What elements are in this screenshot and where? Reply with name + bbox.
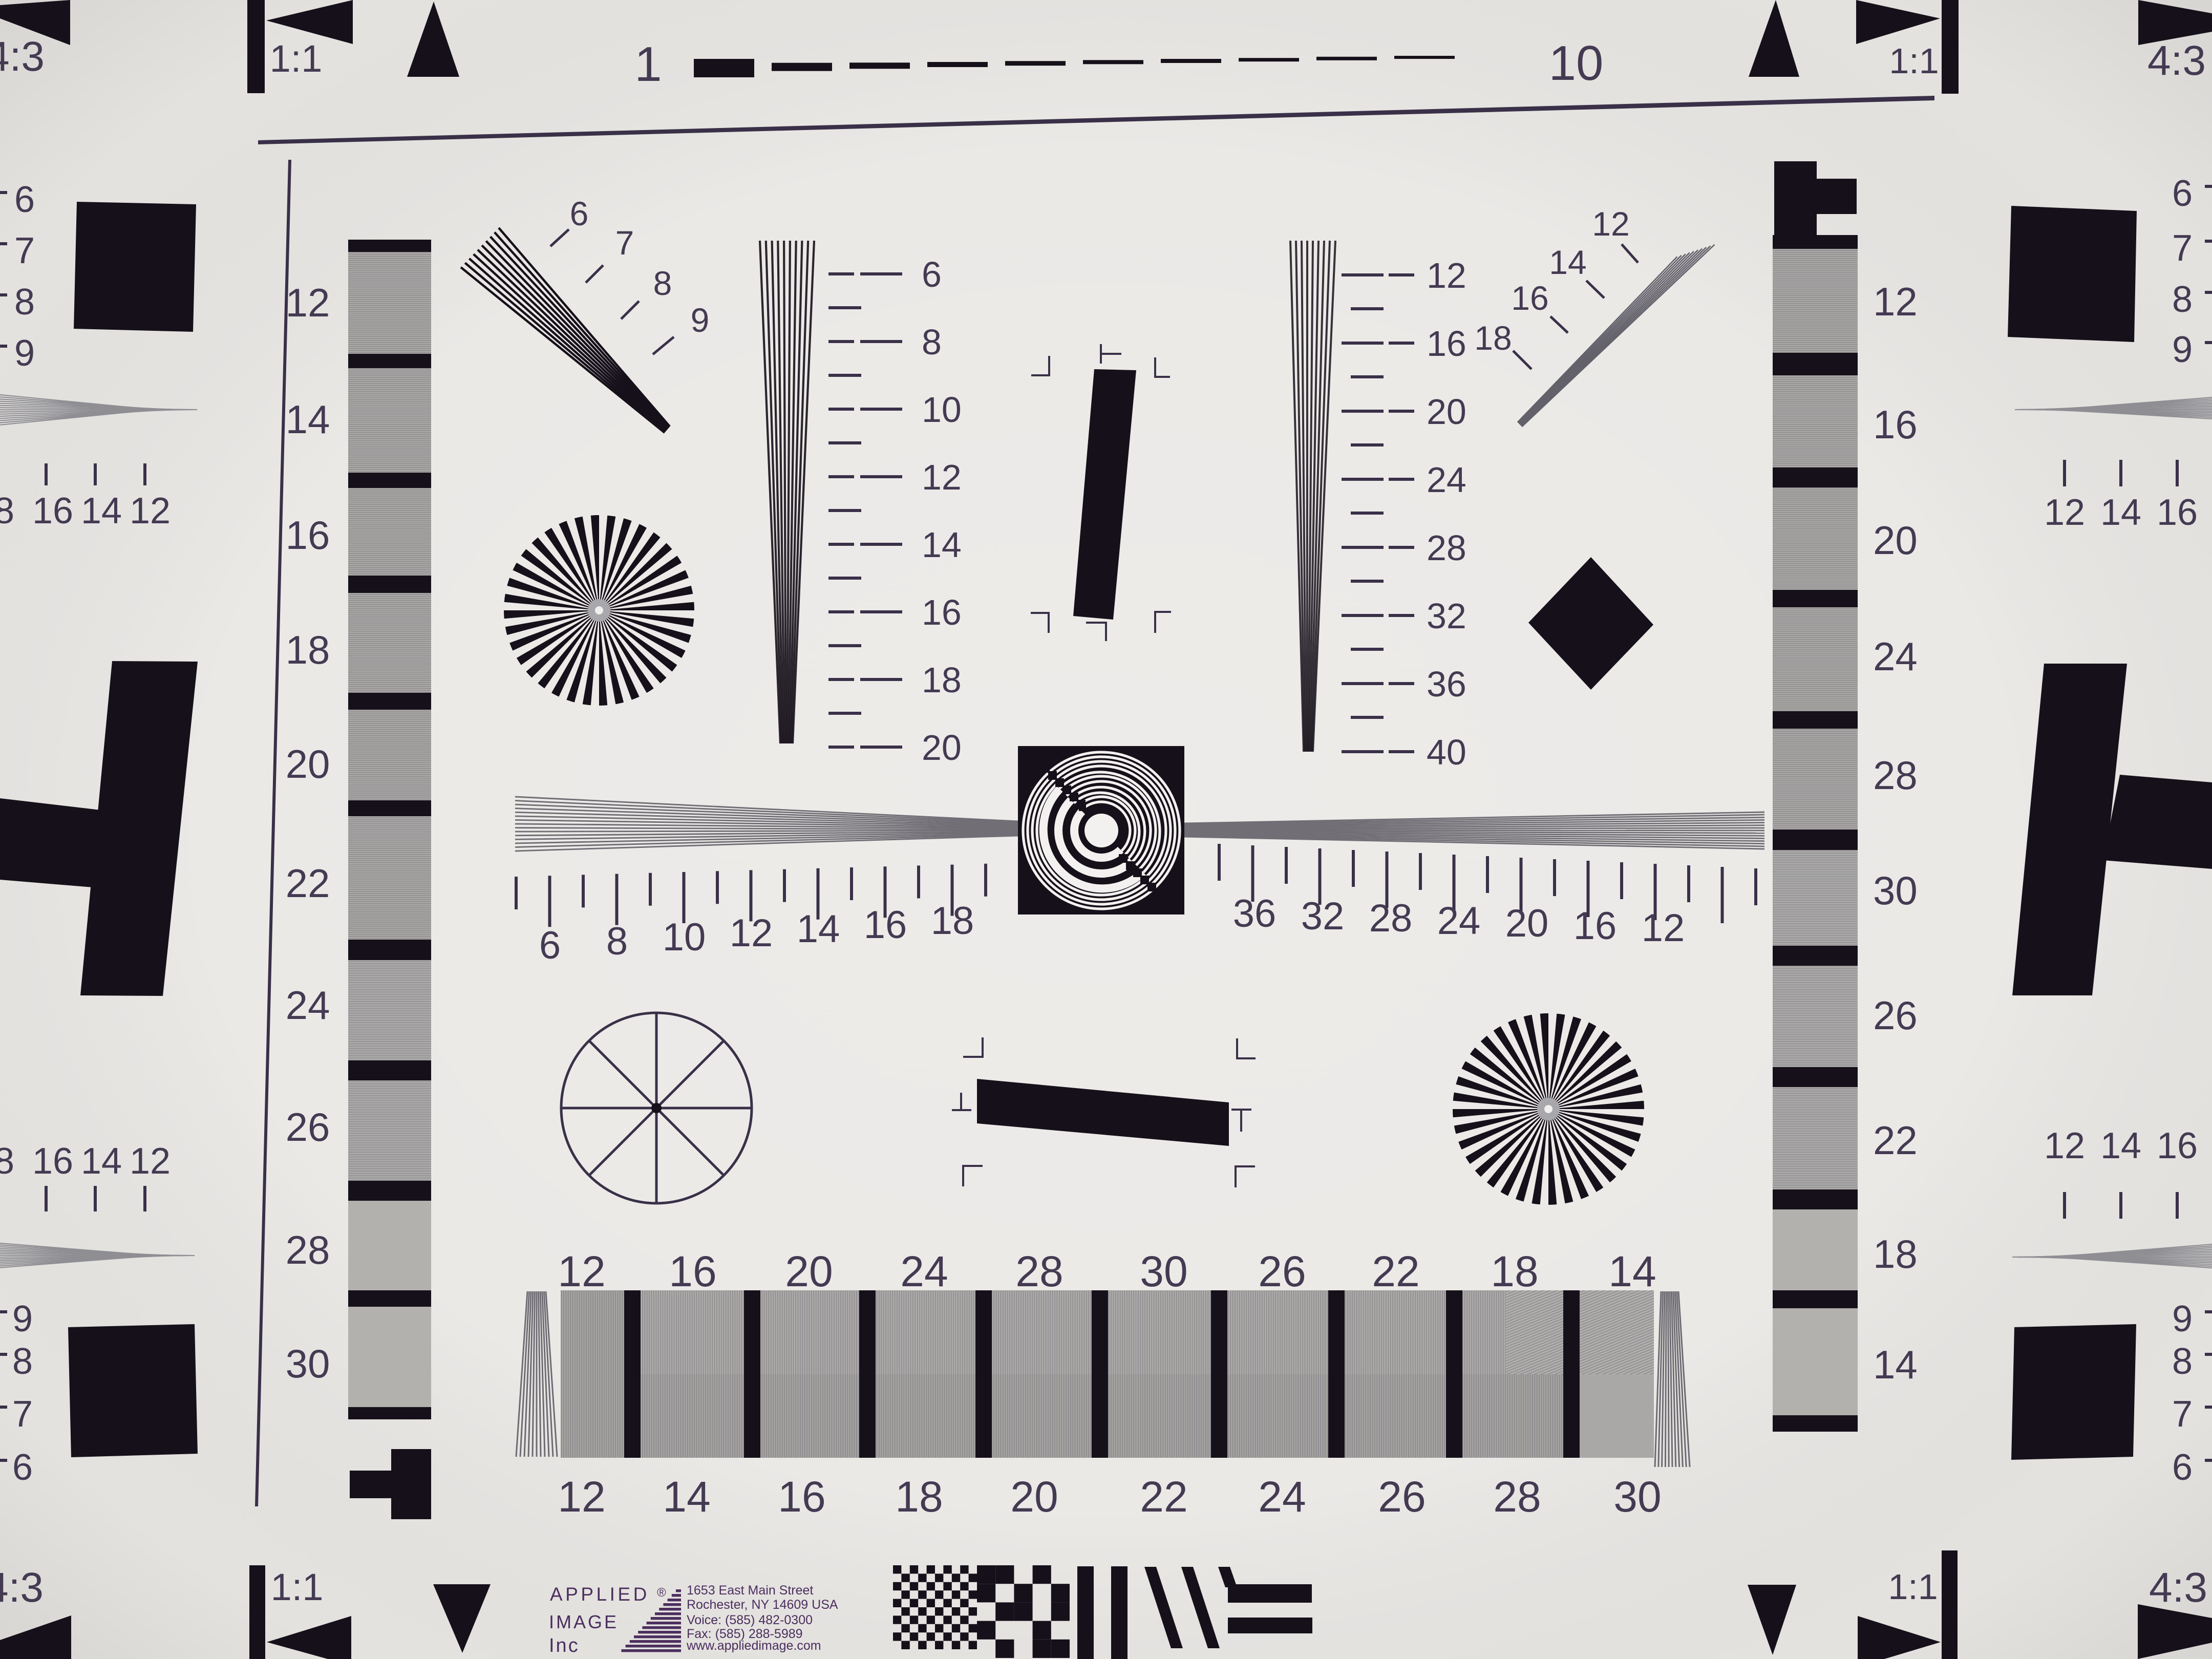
svg-text:4:3: 4:3 [0,1564,44,1611]
svg-text:16: 16 [864,903,907,947]
svg-text:12: 12 [1592,205,1629,243]
svg-text:14: 14 [663,1473,710,1521]
svg-text:24: 24 [286,983,330,1028]
svg-text:7: 7 [2172,1394,2193,1435]
svg-text:1:1: 1:1 [1889,41,1939,81]
svg-text:8: 8 [2172,1341,2193,1382]
svg-text:4:3: 4:3 [2149,1564,2207,1611]
svg-text:16: 16 [32,491,73,531]
svg-text:8: 8 [14,282,35,323]
svg-text:1:1: 1:1 [271,1566,324,1608]
svg-text:20: 20 [1010,1473,1058,1521]
svg-text:6: 6 [14,179,35,220]
svg-text:18: 18 [1474,319,1512,357]
svg-text:12: 12 [130,1141,171,1182]
svg-text:20: 20 [1505,902,1549,945]
svg-text:Inc: Inc [549,1635,580,1656]
svg-text:20: 20 [785,1247,833,1295]
svg-text:26: 26 [1258,1247,1306,1295]
svg-text:10: 10 [1549,36,1604,91]
svg-text:9: 9 [691,301,710,339]
svg-text:10: 10 [663,916,706,959]
svg-text:30: 30 [1613,1473,1661,1521]
svg-text:9: 9 [2172,1299,2193,1339]
svg-text:16: 16 [1573,904,1617,948]
svg-text:1: 1 [634,37,662,92]
svg-text:14: 14 [1549,243,1586,281]
svg-text:16: 16 [1427,324,1466,364]
svg-text:30: 30 [286,1341,330,1386]
svg-text:32: 32 [1427,596,1466,636]
svg-text:40: 40 [1427,732,1466,772]
svg-text:Rochester, NY 14609 USA: Rochester, NY 14609 USA [687,1598,838,1612]
svg-text:26: 26 [1378,1473,1426,1521]
svg-text:36: 36 [1427,664,1466,704]
svg-text:6: 6 [539,924,561,967]
svg-text:16: 16 [286,513,330,558]
svg-text:7: 7 [12,1394,33,1435]
svg-text:18: 18 [922,660,962,700]
svg-text:28: 28 [1369,897,1413,940]
svg-text:8: 8 [0,491,14,531]
svg-text:IMAGE: IMAGE [549,1611,619,1632]
svg-text:14: 14 [81,491,122,531]
svg-text:22: 22 [286,861,330,906]
svg-text:8: 8 [922,322,942,362]
svg-text:14: 14 [2100,1125,2141,1166]
svg-text:14: 14 [286,397,330,442]
svg-text:APPLIED: APPLIED [550,1584,650,1605]
svg-text:8: 8 [2172,279,2193,320]
svg-text:8: 8 [12,1341,33,1382]
svg-text:Voice: (585) 482-0300: Voice: (585) 482-0300 [687,1613,813,1627]
svg-text:®: ® [657,1586,666,1600]
svg-text:18: 18 [1873,1231,1918,1277]
svg-text:28: 28 [1873,753,1918,798]
svg-text:14: 14 [797,907,840,951]
svg-text:12: 12 [1642,906,1685,950]
svg-text:18: 18 [1491,1247,1538,1295]
svg-text:20: 20 [1873,518,1918,563]
svg-text:24: 24 [1437,899,1481,943]
svg-text:22: 22 [1873,1118,1918,1163]
svg-text:1:1: 1:1 [270,37,323,80]
svg-text:18: 18 [931,899,974,943]
svg-text:7: 7 [14,230,35,271]
svg-text:6: 6 [922,254,942,294]
svg-text:12: 12 [130,491,171,531]
svg-text:4:3: 4:3 [0,33,45,80]
svg-text:16: 16 [32,1141,73,1182]
svg-text:28: 28 [286,1227,330,1272]
svg-text:28: 28 [1015,1247,1063,1295]
svg-text:30: 30 [1873,868,1918,913]
svg-text:26: 26 [286,1104,330,1150]
svg-text:8: 8 [606,920,628,963]
svg-text:20: 20 [286,741,330,786]
svg-text:6: 6 [570,195,589,232]
svg-text:18: 18 [895,1473,943,1521]
svg-text:9: 9 [2172,329,2193,370]
svg-text:12: 12 [2044,492,2085,533]
svg-text:24: 24 [1427,460,1466,500]
svg-text:14: 14 [1873,1342,1918,1387]
svg-text:16: 16 [669,1247,716,1295]
svg-text:12: 12 [286,280,330,325]
svg-text:6: 6 [12,1447,33,1488]
svg-text:16: 16 [1511,279,1548,317]
svg-text:1653 East Main Street: 1653 East Main Street [687,1583,813,1598]
svg-text:8: 8 [653,264,672,302]
svg-text:24: 24 [1873,634,1918,679]
svg-text:16: 16 [2157,1125,2198,1166]
svg-text:16: 16 [1873,402,1918,447]
svg-text:10: 10 [922,390,962,430]
svg-text:14: 14 [81,1141,122,1182]
svg-text:20: 20 [1427,392,1466,432]
svg-text:26: 26 [1873,993,1918,1038]
svg-text:12: 12 [922,457,962,497]
svg-text:30: 30 [1140,1247,1187,1295]
svg-text:20: 20 [922,728,962,768]
svg-text:7: 7 [615,224,634,262]
svg-text:6: 6 [2172,1447,2193,1488]
svg-text:32: 32 [1301,895,1345,938]
svg-text:12: 12 [730,911,773,955]
svg-text:12: 12 [2044,1125,2085,1166]
svg-text:9: 9 [12,1299,33,1339]
svg-text:22: 22 [1372,1247,1419,1295]
svg-text:6: 6 [2172,173,2193,214]
svg-text:12: 12 [1427,256,1466,295]
svg-text:36: 36 [1233,892,1277,935]
svg-text:12: 12 [558,1247,605,1295]
svg-text:18: 18 [286,627,330,672]
svg-text:14: 14 [2100,492,2141,533]
svg-text:22: 22 [1140,1473,1187,1521]
svg-text:16: 16 [922,592,962,632]
svg-text:14: 14 [922,525,962,565]
svg-text:24: 24 [900,1247,948,1295]
svg-text:1:1: 1:1 [1888,1567,1938,1607]
svg-text:16: 16 [2157,492,2198,533]
svg-text:14: 14 [1608,1247,1656,1295]
svg-text:www.appliedimage.com: www.appliedimage.com [686,1639,821,1653]
svg-text:4:3: 4:3 [2147,37,2206,84]
svg-text:12: 12 [558,1473,605,1521]
svg-text:9: 9 [14,333,35,374]
svg-text:28: 28 [1427,528,1466,568]
svg-text:16: 16 [778,1473,825,1521]
svg-text:24: 24 [1258,1473,1306,1521]
svg-text:8: 8 [0,1141,14,1182]
svg-text:28: 28 [1493,1473,1541,1521]
svg-text:7: 7 [2172,228,2193,269]
svg-text:12: 12 [1873,279,1918,324]
